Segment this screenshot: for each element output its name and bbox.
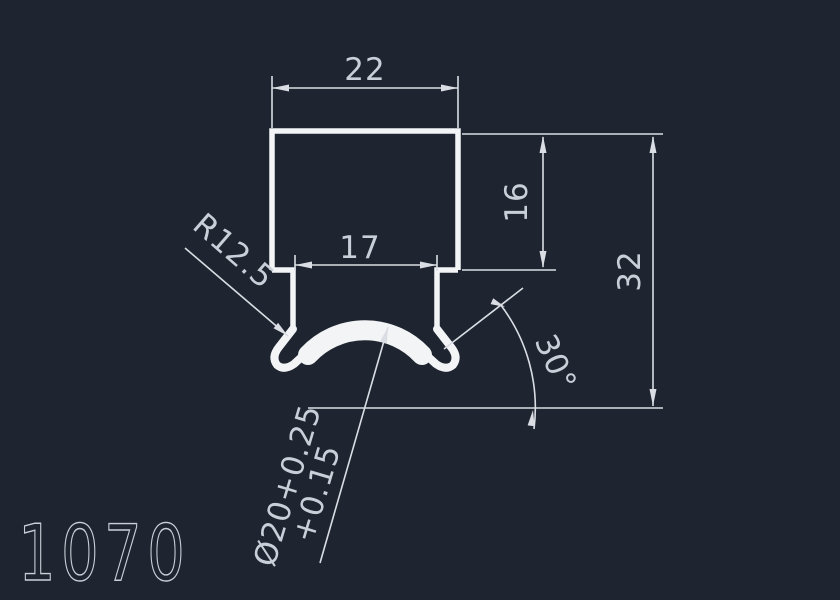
- dimension-slot-width: 17: [295, 230, 437, 271]
- profile-drawing-1070: 22 17 16 32 R12.5 Ø20+0.25 +0.15: [0, 0, 840, 600]
- dim-17-arrow-left: [295, 262, 312, 269]
- dim-32-arrow-bottom: [650, 389, 657, 406]
- dimension-top-width: 22: [272, 52, 458, 128]
- profile-right-lip-and-leg: [437, 270, 458, 329]
- dim-22-arrow-left: [272, 85, 289, 92]
- dim-16-arrow-bottom: [540, 251, 547, 268]
- angle-30-label: 30°: [527, 329, 583, 397]
- dia20-leader-line: [320, 327, 388, 563]
- part-number-label: 1070: [18, 509, 190, 599]
- r125-label: R12.5: [186, 207, 282, 297]
- dim-17-label: 17: [339, 230, 380, 266]
- angle-30-arc: [500, 304, 535, 429]
- angle-30-inclined-line: [444, 288, 523, 349]
- leader-bore-diameter: Ø20+0.25 +0.15: [247, 327, 388, 579]
- dim-32-arrow-top: [650, 136, 657, 153]
- dim-32-label: 32: [612, 250, 648, 291]
- profile-saddle-arc-band: [308, 330, 422, 355]
- dim-22-label: 22: [344, 52, 385, 88]
- dim-16-label: 16: [499, 181, 535, 222]
- profile-left-lip-and-leg: [272, 270, 293, 329]
- cad-drawing-canvas: 22 17 16 32 R12.5 Ø20+0.25 +0.15: [0, 0, 840, 600]
- angle-30-arrow-bottom: [528, 410, 535, 426]
- dimension-body-height: 16: [499, 136, 547, 268]
- dim-16-arrow-top: [540, 136, 547, 153]
- dimension-total-height: 32: [612, 136, 657, 406]
- dim-22-arrow-right: [441, 85, 458, 92]
